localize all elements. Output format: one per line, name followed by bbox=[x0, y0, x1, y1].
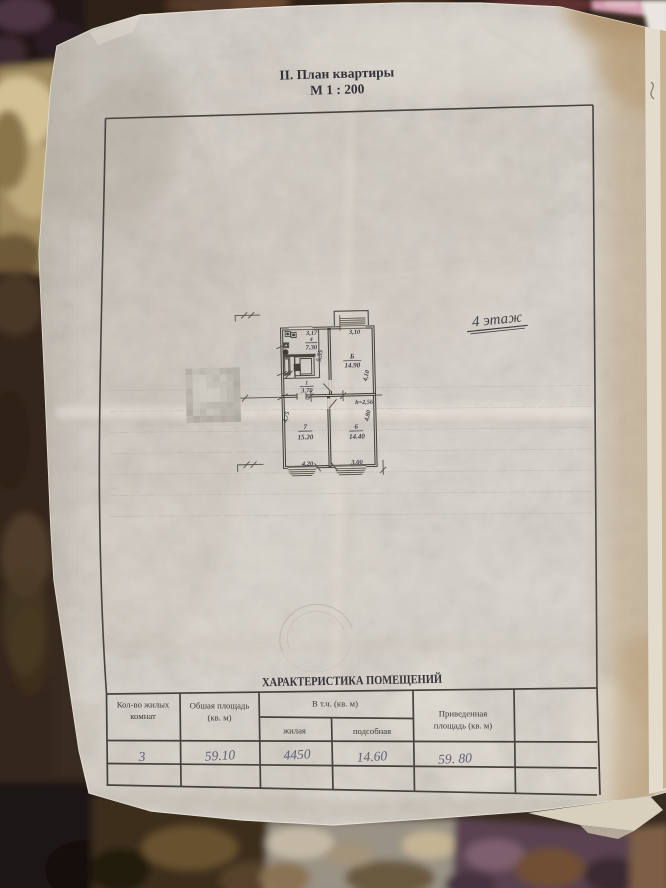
svg-text:4450: 4450 bbox=[283, 746, 311, 762]
svg-text:3: 3 bbox=[137, 749, 146, 764]
svg-text:М 1 : 200: М 1 : 200 bbox=[310, 81, 365, 98]
svg-text:жилая: жилая bbox=[282, 726, 306, 736]
svg-text:подсобная: подсобная bbox=[353, 726, 391, 736]
svg-text:3.00: 3.00 bbox=[350, 459, 363, 466]
svg-text:(кв. м): (кв. м) bbox=[208, 713, 232, 723]
svg-text:59. 80: 59. 80 bbox=[438, 750, 473, 767]
svg-text:Приведенная: Приведенная bbox=[439, 709, 488, 719]
svg-text:15.20: 15.20 bbox=[297, 433, 313, 441]
svg-text:Кол-во жилых: Кол-во жилых bbox=[117, 700, 170, 710]
svg-text:3,17: 3,17 bbox=[305, 330, 318, 337]
svg-text:14.60: 14.60 bbox=[356, 748, 387, 765]
svg-text:1: 1 bbox=[305, 380, 308, 386]
svg-text:h=2,56: h=2,56 bbox=[355, 399, 374, 406]
svg-text:14.90: 14.90 bbox=[344, 361, 360, 369]
svg-text:14.40: 14.40 bbox=[349, 432, 365, 440]
svg-text:4: 4 bbox=[309, 337, 313, 343]
svg-text:Обшая площадь: Обшая площадь bbox=[190, 701, 250, 711]
svg-text:3.70: 3.70 bbox=[300, 387, 313, 394]
svg-text:59.10: 59.10 bbox=[204, 747, 235, 764]
svg-text:площадь (кв. м): площадь (кв. м) bbox=[434, 721, 492, 731]
svg-text:комнат: комнат bbox=[130, 711, 156, 721]
svg-text:7.30: 7.30 bbox=[306, 344, 318, 351]
svg-text:3,10: 3,10 bbox=[348, 329, 361, 336]
svg-text:Б: Б bbox=[349, 352, 355, 360]
svg-text:4.20: 4.20 bbox=[301, 461, 314, 468]
svg-text:В т.ч. (кв. м): В т.ч. (кв. м) bbox=[312, 699, 358, 709]
